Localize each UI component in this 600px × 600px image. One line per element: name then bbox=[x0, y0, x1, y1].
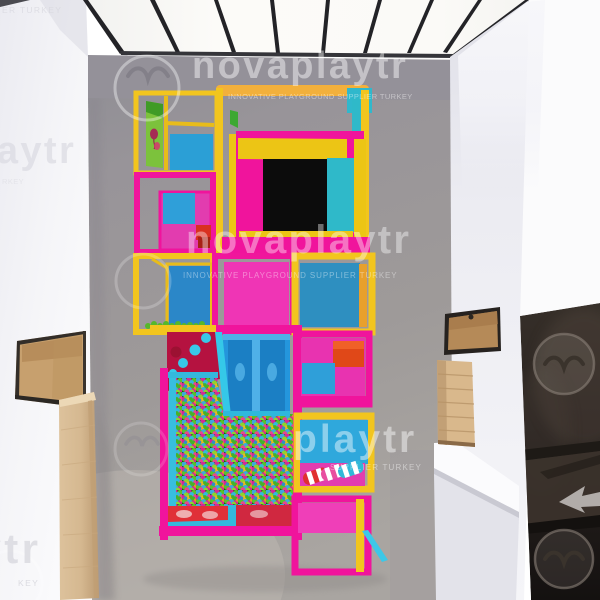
svg-text:ER TURKEY: ER TURKEY bbox=[2, 5, 62, 15]
svg-text:KEY: KEY bbox=[18, 578, 39, 588]
svg-text:novaplaytr: novaplaytr bbox=[192, 45, 408, 87]
svg-text:INNOVATIVE PLAYGROUND SUPPLIER: INNOVATIVE PLAYGROUND SUPPLIER TURKEY bbox=[228, 92, 413, 101]
svg-text:novaplaytr: novaplaytr bbox=[0, 130, 76, 172]
svg-text:novaplaytr: novaplaytr bbox=[186, 218, 411, 262]
svg-text:novaplaytr: novaplaytr bbox=[0, 525, 41, 572]
svg-text:INNOVATIVE PLAYGROUND SUPPLIER: INNOVATIVE PLAYGROUND SUPPLIER TURKEY bbox=[183, 271, 398, 280]
svg-text:SUPPLIER TURKEY: SUPPLIER TURKEY bbox=[330, 463, 422, 472]
svg-text:RKEY: RKEY bbox=[2, 177, 24, 186]
